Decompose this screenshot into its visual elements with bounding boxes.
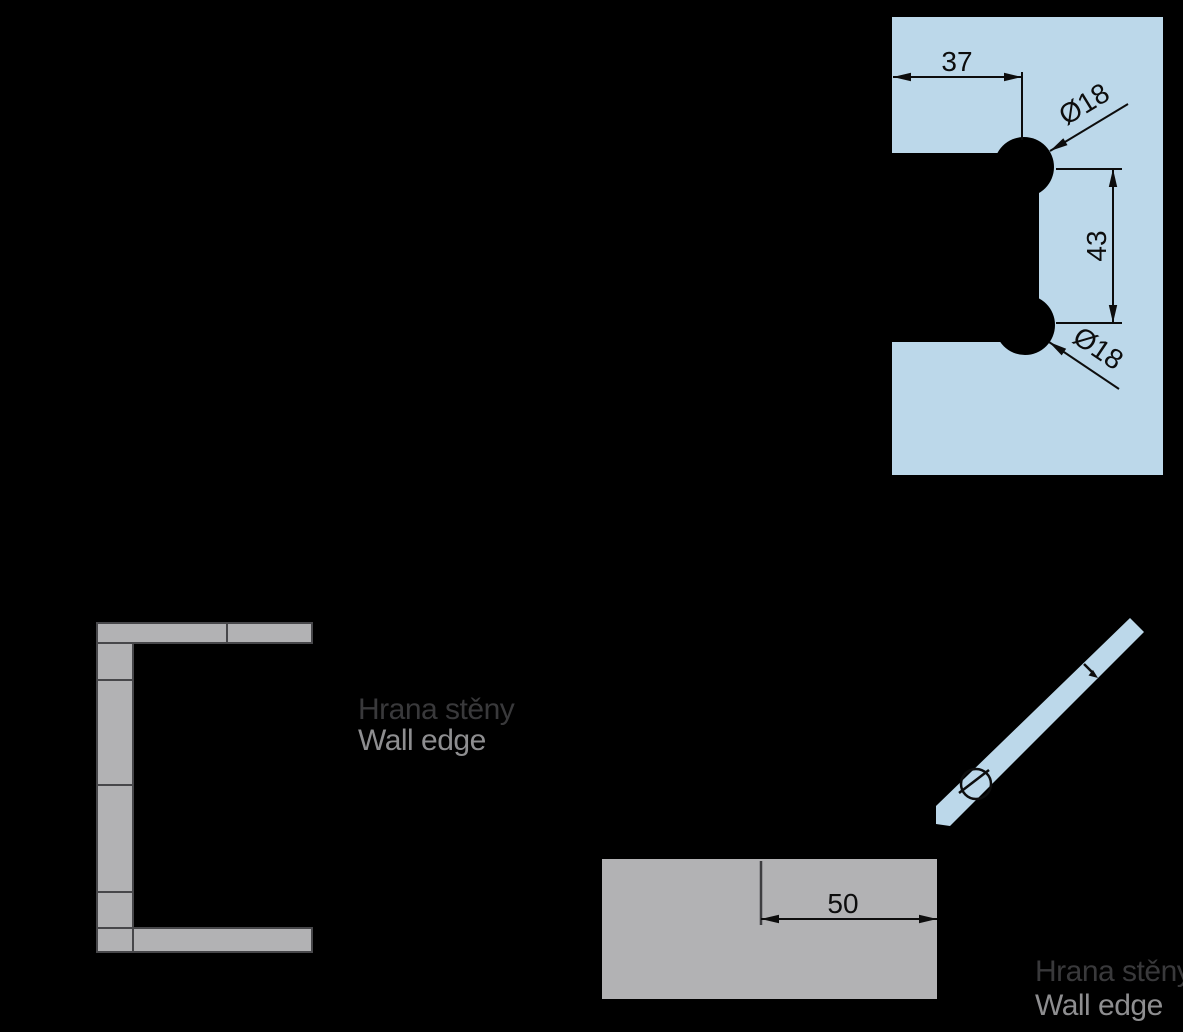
- profile-bottom-bar-left: [97, 928, 133, 952]
- technical-drawing-canvas: 37 Ø18 43 Ø18: [0, 0, 1183, 1032]
- hinge-hole-top: [994, 137, 1054, 197]
- profile-top-bar-right: [227, 623, 312, 643]
- profile-bottom-bar-right: [133, 928, 312, 952]
- wall-top-view: [602, 859, 937, 999]
- wall-edge-label-left-en: Wall edge: [358, 724, 486, 757]
- wall-edge-label-right-cz: Hrana stěny: [1035, 955, 1183, 988]
- wall-edge-label-right: Hrana stěny Wall edge: [1035, 955, 1183, 1022]
- wall-edge-label-right-en: Wall edge: [1035, 989, 1163, 1022]
- dim-50-value: 50: [827, 888, 858, 919]
- profile-column-segment-4: [97, 892, 133, 928]
- wall-edge-label-left-cz: Hrana stěny: [358, 693, 515, 726]
- glass-panel-front-view: 37 Ø18 43 Ø18: [872, 17, 1163, 475]
- dim-43-value: 43: [1081, 230, 1112, 261]
- profile-column-segment-2: [97, 680, 133, 785]
- hinge-hole-bottom: [995, 295, 1055, 355]
- dim-37-value: 37: [941, 46, 972, 77]
- profile-column-segment-3: [97, 785, 133, 892]
- profile-top-bar-left: [97, 623, 227, 643]
- profile-column-segment-1: [97, 643, 133, 680]
